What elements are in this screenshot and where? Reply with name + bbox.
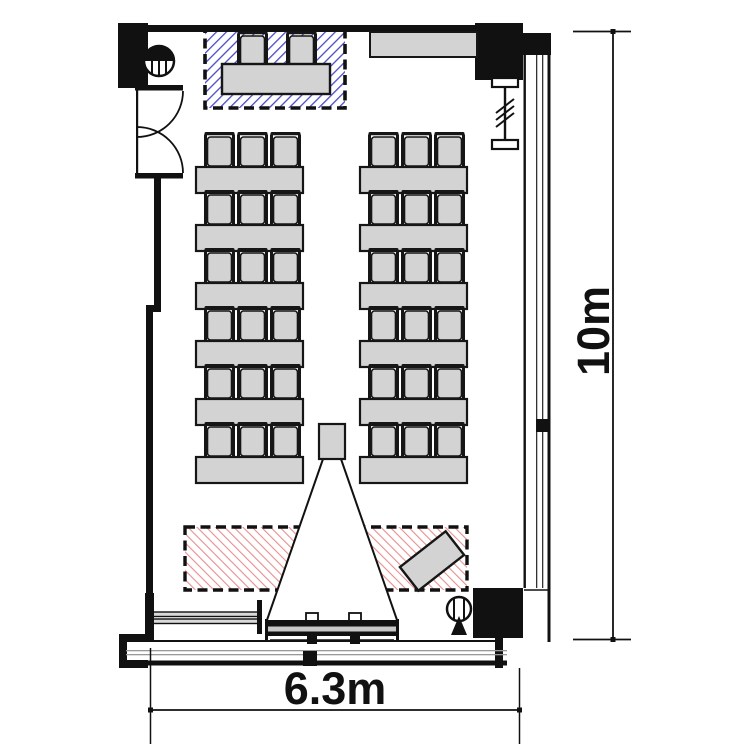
chair [401,306,432,342]
chair [401,190,432,226]
student-table [196,341,303,367]
chair [368,306,399,342]
chair [434,306,465,342]
student-table [360,283,467,309]
chair [237,190,268,226]
chair [434,248,465,284]
chair [204,248,235,284]
column-symbol [144,46,174,76]
projector [319,424,345,459]
dimension-right: 10m [568,29,631,642]
seating-column [196,132,303,483]
chair [204,190,235,226]
chair [368,422,399,458]
chair [237,31,268,67]
student-table [196,399,303,425]
chair [401,364,432,400]
chair [368,190,399,226]
chair [401,422,432,458]
chair [204,364,235,400]
chair [237,422,268,458]
chair [434,364,465,400]
floor-plan-page: 10m 6.3m [0,0,750,750]
chair [270,422,301,458]
chair [270,248,301,284]
seating-column [360,132,467,483]
sprinkler-symbol [447,597,471,635]
student-table [360,167,467,193]
chair [237,364,268,400]
student-table [196,225,303,251]
chair [368,364,399,400]
chair [237,248,268,284]
student-table [360,457,467,483]
student-table [196,457,303,483]
chair [286,31,317,67]
chair [270,190,301,226]
window-wall-right [524,55,551,642]
student-table [196,167,303,193]
chair [270,364,301,400]
student-table [360,399,467,425]
whiteboard-rail [148,600,262,634]
chair [270,306,301,342]
chair [401,132,432,168]
chair [237,306,268,342]
student-table [196,283,303,309]
window-mullion [536,419,549,432]
floor-plan: 10m 6.3m [0,0,750,750]
entrance-door [135,85,183,179]
student-table [360,225,467,251]
chair [204,422,235,458]
chair [204,132,235,168]
chair [368,132,399,168]
student-table [360,341,467,367]
height-dimension-label: 10m [568,286,619,376]
brace-symbol [492,78,518,149]
chair [434,190,465,226]
instructor-desk [222,64,330,94]
chair [237,132,268,168]
chair [204,306,235,342]
wall-counter [370,32,477,57]
width-dimension-label: 6.3m [284,663,387,714]
chair [434,132,465,168]
chair [368,248,399,284]
chair [270,132,301,168]
chair [434,422,465,458]
chair [401,248,432,284]
